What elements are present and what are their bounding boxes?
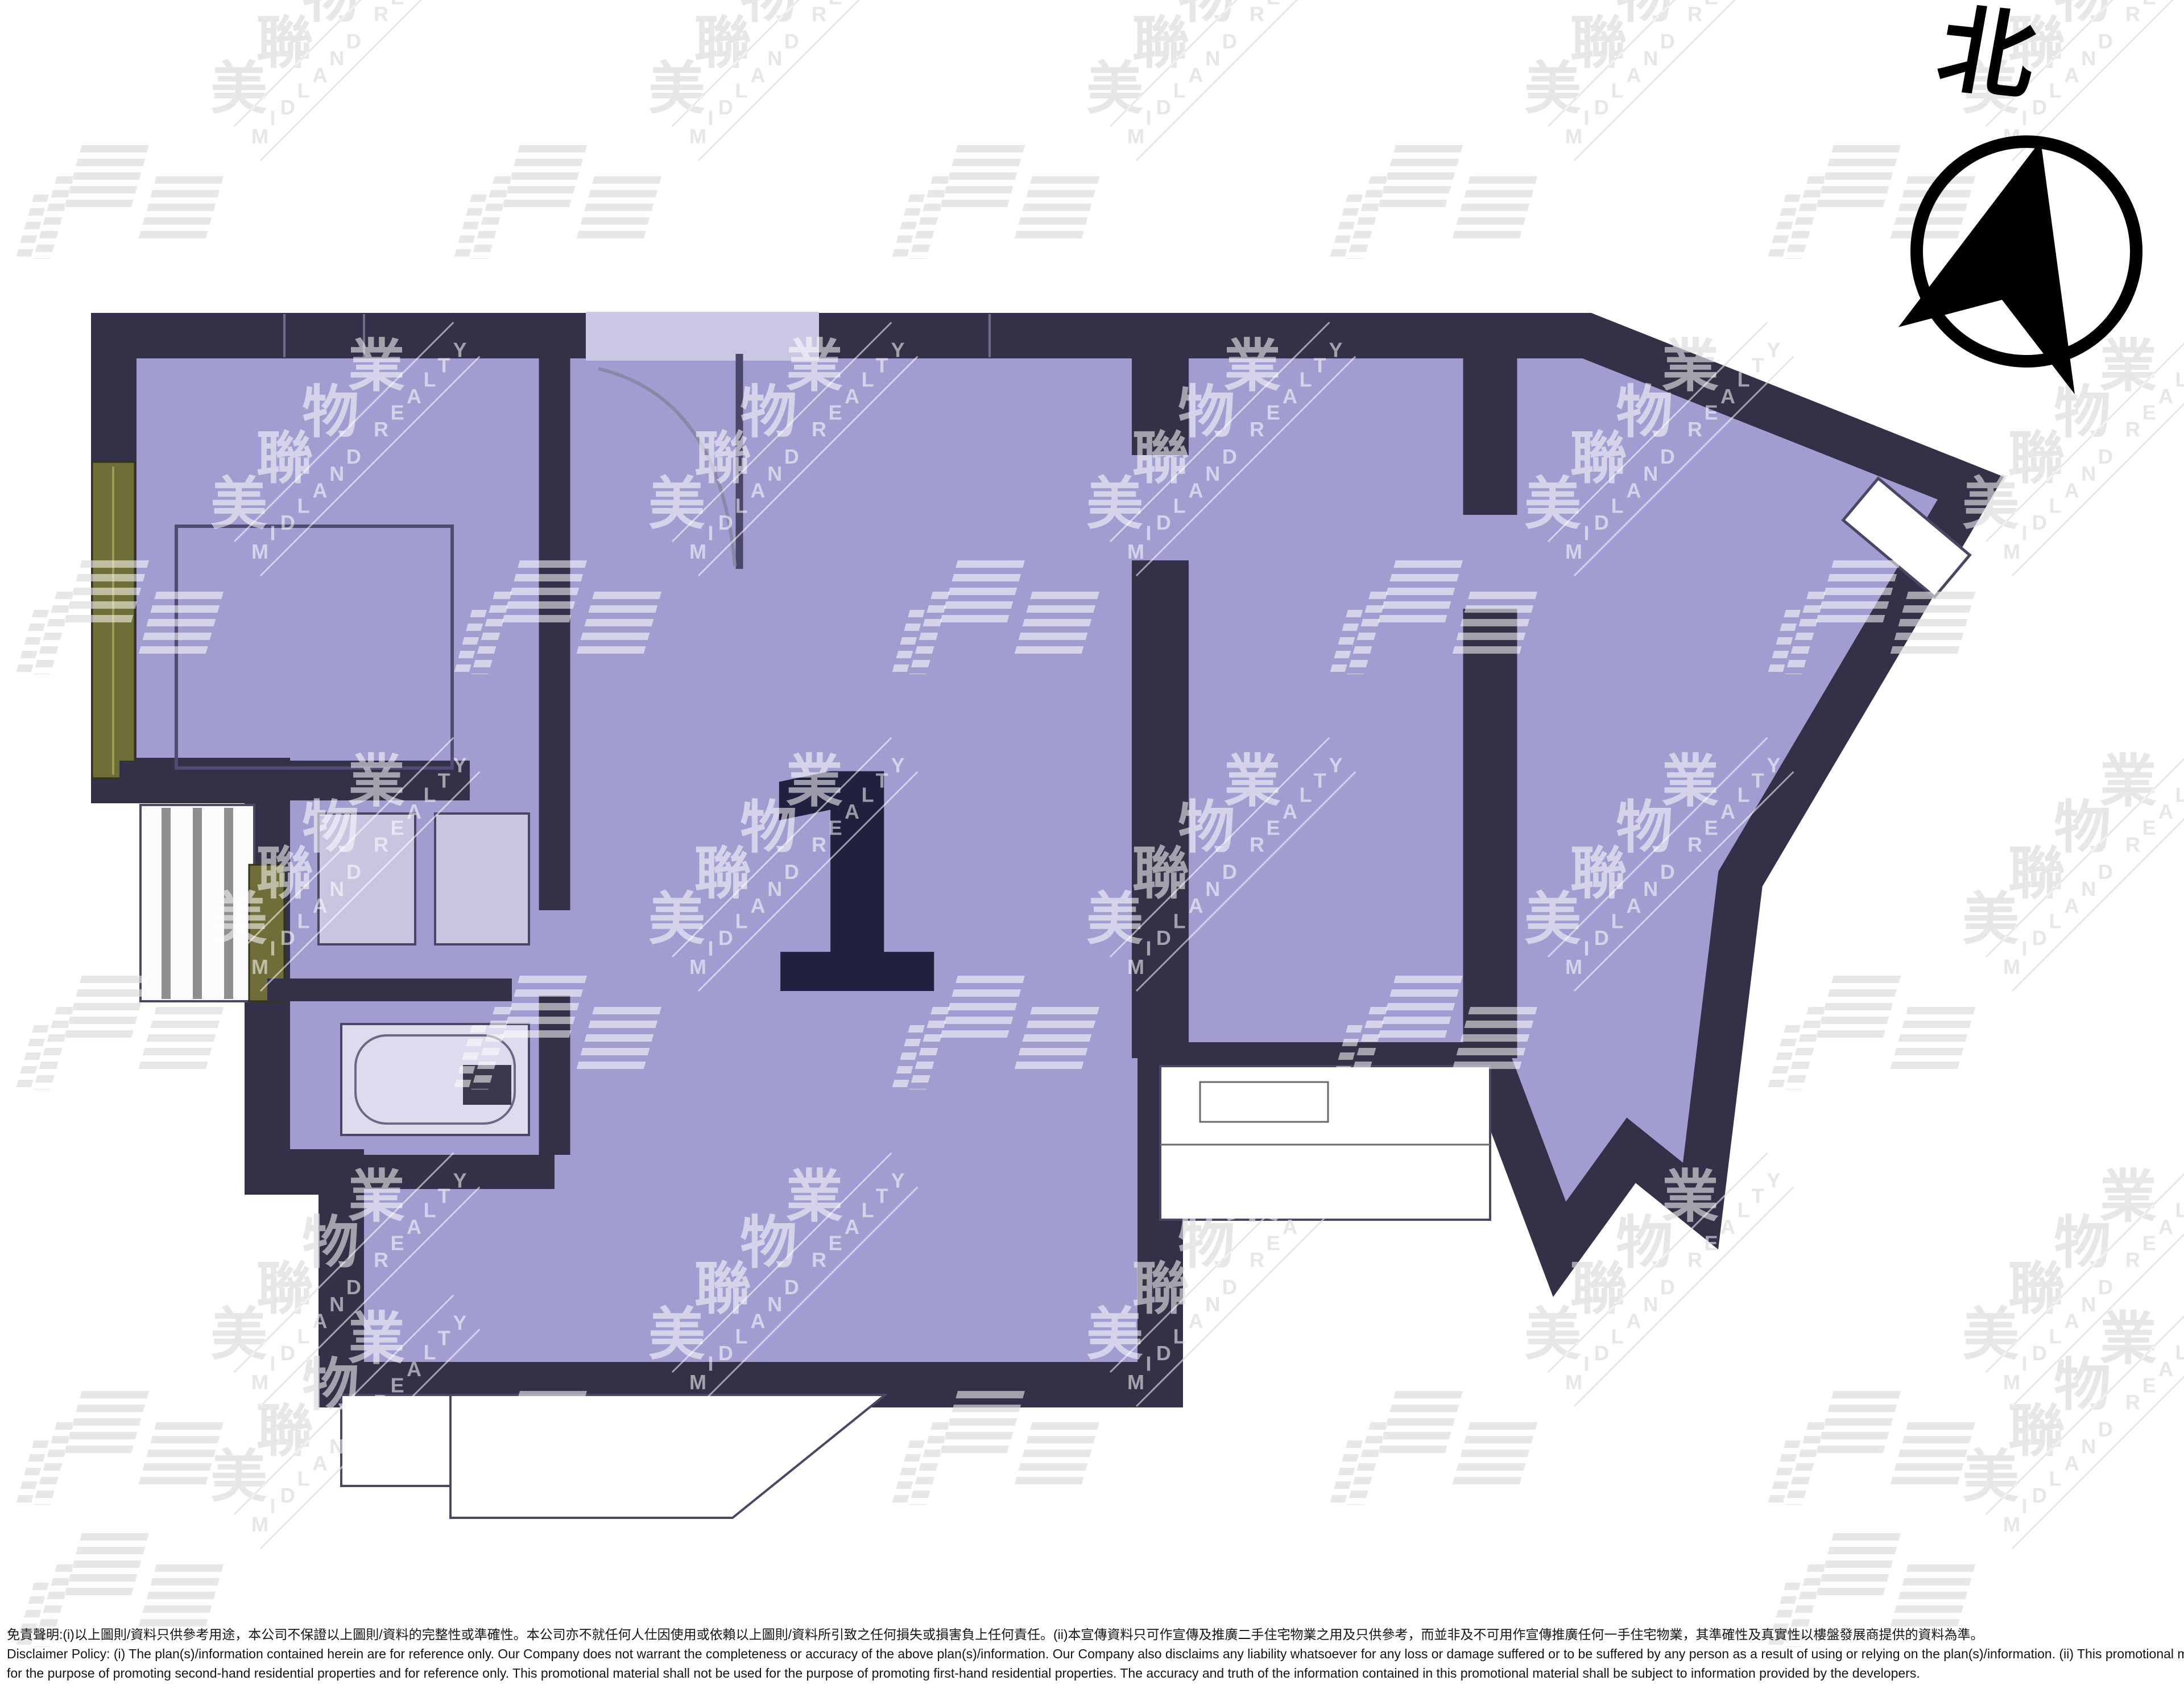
svg-text:美聯物業: 美聯物業 (1054, 302, 1321, 568)
svg-text:美聯物業: 美聯物業 (179, 0, 445, 153)
svg-text:美聯物業: 美聯物業 (617, 1133, 883, 1399)
svg-text:美聯物業: 美聯物業 (1054, 1133, 1321, 1399)
watermark-layer-overlay: 美聯物業MIDLAND REALTY美聯物業MIDLAND REALTY美聯物業… (0, 0, 2184, 1701)
svg-text:美聯物業: 美聯物業 (1492, 302, 1759, 568)
disclaimer-line-chinese: 免責聲明:(i)以上圖則/資料只供參考用途，本公司不保證以上圖則/資料的完整性或… (7, 1625, 2184, 1644)
svg-text:美聯物業: 美聯物業 (1054, 717, 1321, 984)
floorplan-page: 美聯物業MIDLAND REALTY美聯物業MIDLAND REALTY美聯物業… (0, 0, 2184, 1701)
disclaimer-line-english-1: Disclaimer Policy: (i) The plan(s)/infor… (7, 1644, 2184, 1663)
svg-text:美聯物業: 美聯物業 (617, 302, 883, 568)
svg-text:美聯物業: 美聯物業 (179, 717, 445, 984)
compass-icon (1894, 111, 2161, 407)
disclaimer-line-english-2: for the purpose of promoting second-hand… (7, 1663, 2184, 1683)
svg-text:美聯物業: 美聯物業 (1492, 0, 1759, 153)
svg-text:美聯物業: 美聯物業 (617, 0, 883, 153)
svg-text:美聯物業: 美聯物業 (1492, 717, 1759, 984)
compass: 北 (1894, 6, 2173, 415)
svg-text:美聯物業: 美聯物業 (179, 302, 445, 568)
svg-text:美聯物業: 美聯物業 (1054, 0, 1321, 153)
svg-text:美聯物業: 美聯物業 (617, 717, 883, 984)
svg-text:美聯物業: 美聯物業 (1492, 1133, 1759, 1399)
disclaimer-text: 免責聲明:(i)以上圖則/資料只供參考用途，本公司不保證以上圖則/資料的完整性或… (7, 1625, 2184, 1683)
north-label: 北 (1931, 1, 2043, 105)
